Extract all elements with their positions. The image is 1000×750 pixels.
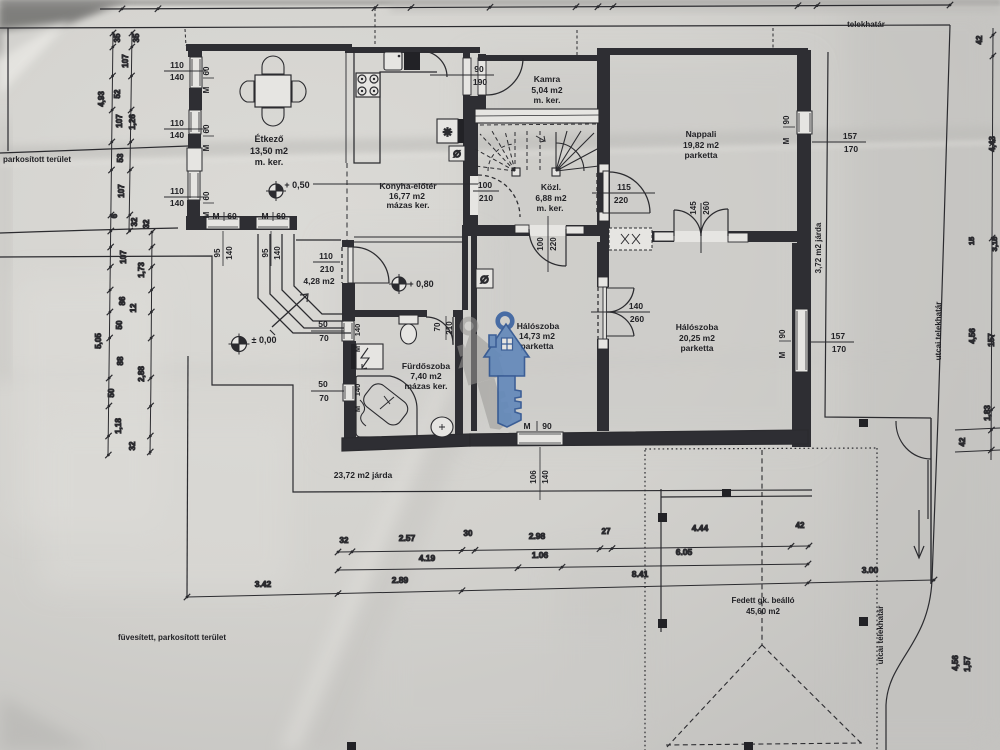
- svg-text:6.05: 6.05: [676, 547, 693, 557]
- svg-text:140: 140: [273, 246, 282, 260]
- svg-text:Étkező: Étkező: [254, 134, 284, 144]
- svg-text:✳: ✳: [443, 127, 452, 139]
- svg-text:60: 60: [227, 211, 237, 221]
- svg-text:42: 42: [796, 521, 805, 530]
- svg-text:110: 110: [170, 186, 184, 196]
- svg-text:mázas ker.: mázas ker.: [404, 381, 447, 391]
- svg-text:1,57: 1,57: [963, 656, 972, 672]
- svg-text:157: 157: [987, 333, 996, 347]
- svg-text:260: 260: [630, 314, 644, 324]
- svg-text:4,56: 4,56: [968, 328, 977, 344]
- svg-text:füvesített, parkosított terüle: füvesített, parkosított terület: [118, 633, 226, 642]
- svg-text:± 0,00: ± 0,00: [252, 335, 277, 345]
- svg-text:140: 140: [170, 198, 184, 208]
- svg-text:M: M: [523, 421, 530, 431]
- svg-text:52: 52: [113, 89, 122, 98]
- svg-text:5,05: 5,05: [94, 333, 103, 349]
- svg-text:4,28 m2: 4,28 m2: [303, 276, 334, 286]
- svg-text:95: 95: [261, 248, 270, 257]
- svg-text:M: M: [261, 211, 268, 221]
- svg-text:m. ker.: m. ker.: [537, 203, 564, 213]
- svg-text:110: 110: [319, 251, 333, 261]
- svg-text:∅: ∅: [480, 275, 489, 286]
- svg-text:20,25 m2: 20,25 m2: [679, 333, 715, 343]
- svg-text:100: 100: [536, 237, 545, 251]
- svg-text:70: 70: [319, 333, 329, 343]
- svg-text:107: 107: [121, 54, 130, 68]
- svg-text:m. ker.: m. ker.: [255, 157, 284, 167]
- svg-text:60: 60: [276, 211, 286, 221]
- svg-text:107: 107: [115, 114, 124, 128]
- svg-text:3.00: 3.00: [862, 565, 879, 575]
- svg-text:1,83: 1,83: [983, 405, 992, 421]
- svg-text:Konyha-előtér: Konyha-előtér: [379, 181, 437, 191]
- svg-text:M: M: [353, 406, 362, 412]
- svg-text:Közl.: Közl.: [541, 182, 561, 192]
- svg-text:parketta: parketta: [684, 150, 717, 160]
- svg-text:42: 42: [958, 437, 967, 446]
- svg-text:M: M: [202, 144, 211, 151]
- svg-text:M: M: [202, 86, 211, 93]
- svg-text:5,04 m2: 5,04 m2: [531, 85, 562, 95]
- svg-text:3,72 m2 járda: 3,72 m2 járda: [814, 222, 823, 273]
- svg-text:2.89: 2.89: [392, 575, 409, 585]
- svg-text:50: 50: [318, 319, 328, 329]
- svg-text:140: 140: [170, 72, 184, 82]
- svg-text:utcai telekhatár: utcai telekhatár: [934, 302, 943, 361]
- svg-text:220: 220: [549, 237, 558, 251]
- svg-text:utcai telekhatár: utcai telekhatár: [876, 606, 885, 665]
- svg-text:60: 60: [202, 191, 211, 200]
- svg-text:140: 140: [225, 246, 234, 260]
- svg-text:190: 190: [473, 77, 487, 87]
- svg-text:Hálószoba: Hálószoba: [676, 322, 719, 332]
- svg-text:260: 260: [702, 201, 711, 215]
- svg-text:86: 86: [118, 296, 127, 305]
- svg-text:110: 110: [170, 118, 184, 128]
- svg-text:157: 157: [843, 131, 857, 141]
- svg-text:50: 50: [107, 388, 116, 397]
- svg-text:M: M: [778, 351, 787, 358]
- svg-text:∅: ∅: [453, 149, 461, 159]
- svg-text:1.06: 1.06: [532, 550, 549, 560]
- svg-text:parketta: parketta: [680, 343, 713, 353]
- svg-text:95: 95: [213, 248, 222, 257]
- svg-text:140: 140: [541, 470, 550, 484]
- svg-text:220: 220: [614, 195, 628, 205]
- svg-text:15: 15: [967, 237, 976, 245]
- svg-text:M: M: [202, 211, 211, 218]
- svg-text:145: 145: [689, 201, 698, 215]
- svg-text:32: 32: [130, 217, 139, 226]
- svg-text:90: 90: [782, 115, 791, 124]
- svg-text:157: 157: [831, 331, 845, 341]
- svg-text:13,50 m2: 13,50 m2: [250, 146, 288, 156]
- svg-text:Kamra: Kamra: [534, 74, 561, 84]
- svg-text:4.19: 4.19: [419, 553, 436, 563]
- svg-text:1,73: 1,73: [137, 262, 146, 278]
- svg-text:Hálószoba: Hálószoba: [517, 321, 560, 331]
- svg-text:210: 210: [320, 264, 334, 274]
- svg-text:88: 88: [116, 356, 125, 365]
- svg-text:42: 42: [975, 35, 984, 44]
- svg-text:140: 140: [170, 130, 184, 140]
- svg-text:70: 70: [319, 393, 329, 403]
- svg-text:M: M: [212, 211, 219, 221]
- svg-text:7,40 m2: 7,40 m2: [410, 371, 441, 381]
- svg-text:Fedett gk. beálló: Fedett gk. beálló: [731, 596, 794, 605]
- svg-text:4,56: 4,56: [951, 655, 960, 671]
- svg-text:32: 32: [142, 219, 151, 228]
- svg-text:70: 70: [433, 322, 442, 331]
- svg-text:110: 110: [170, 60, 184, 70]
- svg-text:1,18: 1,18: [114, 418, 123, 434]
- svg-text:90: 90: [778, 329, 787, 338]
- svg-text:M: M: [782, 137, 791, 144]
- svg-text:115: 115: [617, 182, 631, 192]
- svg-text:2.98: 2.98: [529, 531, 546, 541]
- svg-text:parketta: parketta: [520, 341, 553, 351]
- svg-text:12: 12: [129, 303, 138, 312]
- svg-text:Fürdőszoba: Fürdőszoba: [402, 361, 450, 371]
- svg-text:90: 90: [474, 64, 484, 74]
- svg-text:140: 140: [629, 301, 643, 311]
- svg-text:32: 32: [128, 441, 137, 450]
- svg-text:4,43: 4,43: [988, 136, 997, 152]
- svg-text:30: 30: [464, 529, 473, 538]
- svg-text:45,60 m2: 45,60 m2: [746, 607, 780, 616]
- svg-text:+ 0,80: + 0,80: [408, 279, 433, 289]
- svg-text:6,88 m2: 6,88 m2: [535, 193, 566, 203]
- svg-text:140: 140: [353, 384, 362, 397]
- svg-text:35: 35: [113, 33, 122, 42]
- svg-text:210: 210: [479, 193, 493, 203]
- svg-text:170: 170: [844, 144, 858, 154]
- svg-text:Nappali: Nappali: [686, 129, 717, 139]
- svg-text:23,72 m2 járda: 23,72 m2 járda: [334, 470, 393, 480]
- svg-text:3,15: 3,15: [990, 237, 999, 252]
- svg-text:3.42: 3.42: [255, 579, 272, 589]
- svg-text:4,93: 4,93: [97, 91, 106, 107]
- svg-text:M: M: [353, 346, 362, 352]
- svg-text:100: 100: [478, 180, 492, 190]
- svg-text:6: 6: [110, 213, 119, 218]
- svg-text:2,88: 2,88: [137, 366, 146, 382]
- svg-text:50: 50: [318, 379, 328, 389]
- svg-text:107: 107: [119, 250, 128, 264]
- svg-text:35: 35: [132, 33, 141, 42]
- svg-text:107: 107: [117, 184, 126, 198]
- svg-text:+ 0,50: + 0,50: [284, 180, 309, 190]
- svg-text:8.41: 8.41: [632, 569, 649, 579]
- svg-text:1,26: 1,26: [128, 114, 137, 130]
- svg-text:mázas ker.: mázas ker.: [386, 200, 429, 210]
- svg-text:32: 32: [340, 536, 349, 545]
- svg-text:53: 53: [116, 153, 125, 162]
- svg-text:parkosított terület: parkosított terület: [3, 155, 71, 164]
- svg-text:m. ker.: m. ker.: [534, 95, 561, 105]
- svg-text:19,82 m2: 19,82 m2: [683, 140, 719, 150]
- svg-text:4.44: 4.44: [692, 523, 709, 533]
- svg-text:90: 90: [542, 421, 552, 431]
- svg-text:14,73 m2: 14,73 m2: [519, 331, 555, 341]
- svg-text:50: 50: [115, 320, 124, 329]
- svg-text:170: 170: [832, 344, 846, 354]
- svg-text:106: 106: [529, 470, 538, 484]
- svg-text:140: 140: [353, 324, 362, 337]
- svg-text:telekhatár: telekhatár: [847, 20, 885, 29]
- svg-text:2.57: 2.57: [399, 533, 416, 543]
- svg-text:27: 27: [602, 527, 611, 536]
